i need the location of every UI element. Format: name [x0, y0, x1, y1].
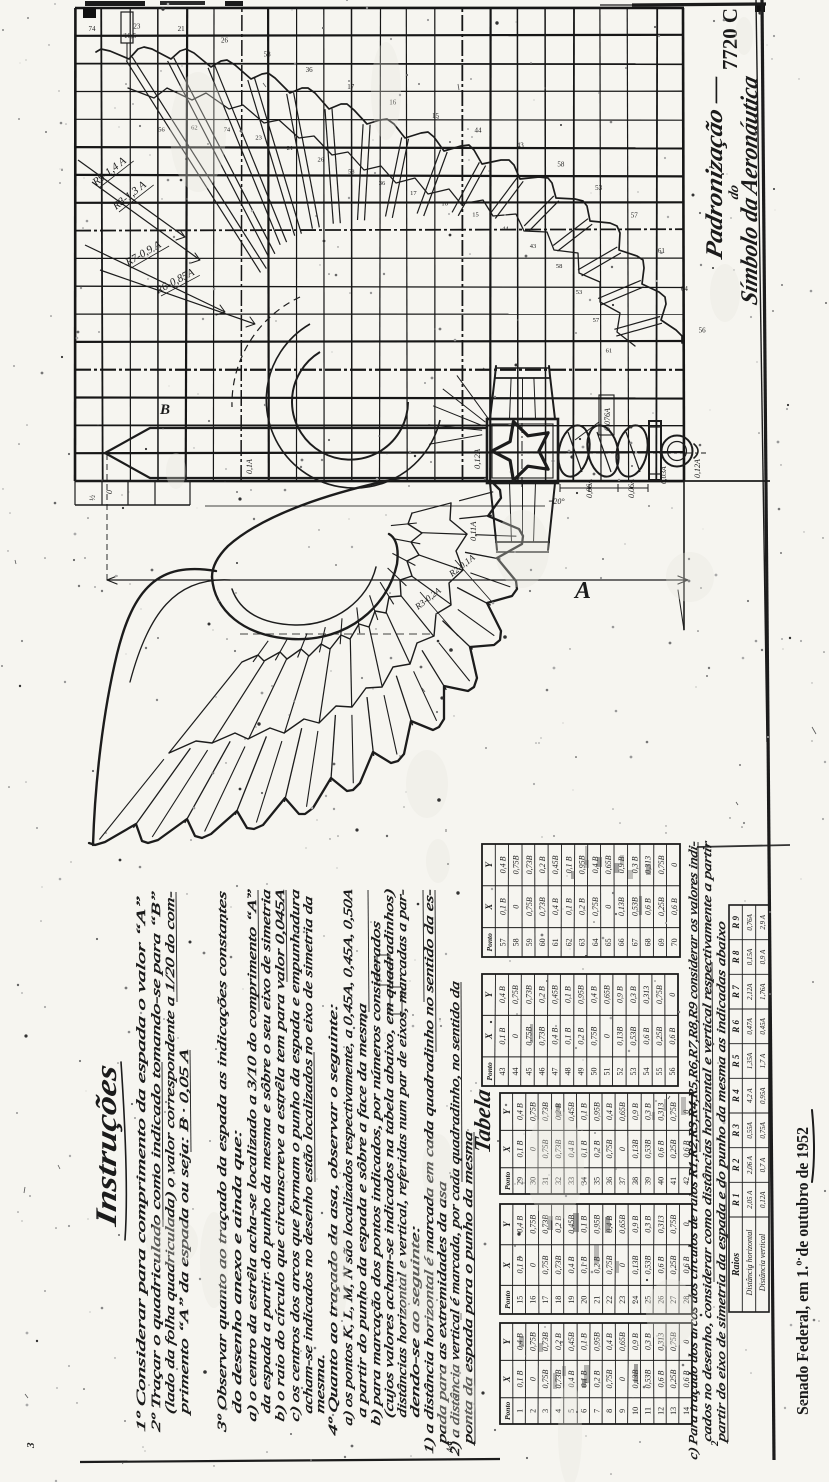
svg-text:X: X	[484, 1032, 494, 1040]
svg-text:56: 56	[158, 126, 165, 133]
svg-text:0,1 B: 0,1 B	[498, 1028, 507, 1045]
svg-text:2,9 A: 2,9 A	[759, 914, 767, 929]
svg-text:8: 8	[605, 1409, 614, 1413]
svg-text:9: 9	[618, 1409, 627, 1413]
svg-text:16: 16	[441, 201, 448, 208]
svg-text:acham-se indicados no desenho: acham-se indicados no desenho estão loca…	[301, 895, 315, 1415]
svg-text:0,47A: 0,47A	[746, 1017, 754, 1034]
svg-text:0,13B: 0,13B	[631, 1255, 640, 1274]
svg-text:mesma.: mesma.	[313, 1352, 327, 1415]
svg-text:3º Observar quanto ao traçado: 3º Observar quanto ao traçado da espada …	[215, 890, 229, 1435]
svg-text:43: 43	[517, 141, 525, 149]
svg-text:0,6 B: 0,6 B	[656, 1256, 665, 1273]
svg-text:4-8: 4-8	[445, 1441, 454, 1453]
svg-text:0,2 B: 0,2 B	[592, 1371, 601, 1388]
svg-text:0: 0	[670, 863, 679, 867]
svg-text:62: 62	[564, 938, 573, 946]
svg-text:0: 0	[528, 1377, 537, 1381]
svg-text:Ponto: Ponto	[503, 1290, 512, 1309]
svg-text:0,1 B: 0,1 B	[580, 1333, 589, 1350]
svg-text:47: 47	[550, 1067, 559, 1075]
svg-text:36: 36	[379, 180, 386, 187]
svg-text:Instruções: Instruções	[89, 1061, 123, 1229]
svg-text:R3-0,2A: R3-0,2A	[412, 585, 443, 612]
svg-text:0,9 B: 0,9 B	[631, 1333, 640, 1350]
svg-text:54: 54	[642, 1067, 651, 1075]
svg-text:Y: Y	[502, 1107, 512, 1114]
svg-text:0,076A: 0,076A	[603, 408, 612, 431]
svg-text:a partir do punho da espada e: a partir do punho da espada e sôbre a fa…	[355, 1002, 369, 1419]
svg-text:0,6 B: 0,6 B	[656, 1141, 665, 1158]
svg-text:29: 29	[516, 1177, 525, 1185]
svg-text:B: B	[159, 402, 170, 418]
svg-text:0,06A: 0,06A	[585, 479, 594, 498]
svg-text:0,65B: 0,65B	[604, 855, 613, 874]
svg-text:c) os centros dos arcos que fo: c) os centros dos arcos que formam o pun…	[288, 888, 302, 1423]
svg-text:R 3: R 3	[731, 1123, 741, 1137]
svg-text:Y: Y	[502, 1337, 512, 1344]
svg-text:0,4 B: 0,4 B	[516, 1216, 525, 1233]
svg-text:21: 21	[592, 1296, 601, 1304]
svg-text:0,1 B: 0,1 B	[564, 898, 573, 915]
svg-text:Símbolo da Aeronáutica: Símbolo da Aeronáutica	[736, 73, 763, 308]
svg-text:0,1 B: 0,1 B	[564, 856, 573, 873]
svg-text:0,3 B: 0,3 B	[644, 1216, 653, 1233]
svg-text:51: 51	[603, 1067, 612, 1075]
svg-text:0,75B: 0,75B	[512, 855, 521, 874]
svg-text:2: 2	[709, 1440, 721, 1447]
svg-text:58: 58	[557, 160, 565, 168]
svg-text:0,6 B: 0,6 B	[644, 898, 653, 915]
svg-text:b) o raio do círculo que circu: b) o raio do círculo que circunscreve a …	[273, 887, 287, 1422]
svg-text:0,75B: 0,75B	[528, 1215, 537, 1234]
svg-text:65: 65	[604, 938, 613, 946]
svg-text:0,4 B: 0,4 B	[498, 986, 507, 1003]
svg-text:R 6: R 6	[731, 1019, 741, 1033]
svg-text:0,6 B: 0,6 B	[668, 1028, 677, 1045]
svg-text:0,75B: 0,75B	[525, 897, 534, 916]
svg-text:0,75B: 0,75B	[541, 1370, 550, 1389]
svg-text:61: 61	[551, 938, 560, 946]
svg-text:70: 70	[670, 938, 679, 946]
svg-text:66: 66	[617, 938, 626, 946]
svg-text:0,53B: 0,53B	[644, 1370, 653, 1389]
svg-text:0,1 B: 0,1 B	[580, 1256, 589, 1273]
svg-text:56: 56	[668, 1067, 677, 1075]
svg-text:0: 0	[512, 905, 521, 909]
svg-text:0,45B: 0,45B	[567, 1332, 576, 1351]
svg-text:68: 68	[644, 938, 653, 946]
svg-text:Distância horizontal: Distância horizontal	[745, 1229, 754, 1297]
svg-text:0,2 B: 0,2 B	[592, 1141, 601, 1158]
svg-text:53: 53	[629, 1067, 638, 1075]
svg-text:69: 69	[657, 938, 666, 946]
svg-text:0,73B: 0,73B	[538, 897, 547, 916]
svg-text:0,95B: 0,95B	[577, 985, 586, 1004]
svg-text:2,12A: 2,12A	[746, 983, 754, 1000]
svg-text:X: X	[502, 1261, 512, 1269]
svg-text:0,4 B: 0,4 B	[605, 1103, 614, 1120]
svg-text:21: 21	[178, 25, 186, 33]
svg-text:0,2 B: 0,2 B	[577, 1028, 586, 1045]
svg-text:0: 0	[618, 1263, 627, 1267]
svg-text:4º Quanto ao traçado da asa, o: 4º Quanto ao traçado da asa, observar o …	[326, 1002, 340, 1437]
svg-text:Y: Y	[502, 1220, 512, 1227]
svg-text:0,73B: 0,73B	[554, 1255, 563, 1274]
svg-text:0: 0	[618, 1377, 627, 1381]
svg-text:18: 18	[554, 1296, 563, 1304]
svg-text:50: 50	[590, 1067, 599, 1075]
svg-text:60: 60	[538, 938, 547, 946]
svg-text:23: 23	[133, 23, 141, 31]
svg-text:0,55A: 0,55A	[746, 1121, 754, 1138]
svg-text:0,1 B: 0,1 B	[498, 898, 507, 915]
svg-text:Raios: Raios	[731, 1253, 742, 1277]
svg-text:67: 67	[630, 938, 639, 946]
svg-text:0,9 B: 0,9 B	[616, 986, 625, 1003]
svg-text:44: 44	[511, 1067, 520, 1075]
svg-text:0,1 B: 0,1 B	[580, 1216, 589, 1233]
svg-text:3: 3	[25, 1442, 37, 1449]
svg-text:0,73B: 0,73B	[524, 985, 533, 1004]
svg-text:(lado da folha quadriculada) o: (lado da folha quadriculada) o valor cor…	[163, 890, 177, 1415]
svg-text:58: 58	[512, 938, 521, 946]
svg-text:17: 17	[410, 190, 417, 197]
svg-text:15: 15	[516, 1296, 525, 1304]
svg-text:53: 53	[576, 289, 583, 296]
svg-text:0,75B: 0,75B	[605, 1255, 614, 1274]
svg-text:0,12A: 0,12A	[472, 448, 482, 469]
svg-text:45: 45	[524, 1067, 533, 1075]
svg-text:53: 53	[595, 184, 603, 192]
svg-text:0,1 B: 0,1 B	[516, 1256, 525, 1273]
svg-text:0,25B: 0,25B	[669, 1370, 678, 1389]
svg-text:1,7 A: 1,7 A	[759, 1053, 767, 1068]
svg-text:0,313: 0,313	[642, 986, 651, 1004]
svg-text:20: 20	[580, 1296, 589, 1304]
svg-text:55: 55	[655, 1067, 664, 1075]
svg-text:2,05 A: 2,05 A	[746, 1190, 754, 1209]
svg-text:0,73B: 0,73B	[525, 855, 534, 874]
svg-text:0,4 B: 0,4 B	[516, 1103, 525, 1120]
svg-text:R 5: R 5	[731, 1054, 741, 1068]
svg-text:R8-1,3 A: R8-1,3 A	[110, 179, 149, 213]
svg-text:56: 56	[699, 326, 707, 334]
svg-text:13: 13	[669, 1407, 678, 1415]
svg-text:24: 24	[631, 1296, 640, 1304]
svg-text:a) os pontos K, L, M, N são lo: a) os pontos K, L, M, N são localizados …	[341, 887, 355, 1426]
svg-text:0,9 B: 0,9 B	[631, 1216, 640, 1233]
svg-text:17: 17	[347, 83, 355, 91]
svg-text:21: 21	[287, 145, 294, 152]
svg-text:cados no desenho, considerar c: cados no desenho, considerar como distân…	[700, 839, 714, 1442]
svg-text:4,2 A: 4,2 A	[746, 1088, 754, 1103]
svg-text:0,3 B: 0,3 B	[644, 1333, 653, 1350]
svg-text:64: 64	[681, 285, 689, 293]
svg-text:R 2: R 2	[731, 1158, 741, 1172]
svg-text:2: 2	[528, 1409, 537, 1413]
svg-text:b) para marcação dos pontos in: b) para marcação dos pontos indicados, p…	[369, 920, 383, 1427]
svg-text:0,03A: 0,03A	[659, 466, 668, 484]
svg-text:0,4 B: 0,4 B	[550, 1028, 559, 1045]
svg-text:22: 22	[605, 1296, 614, 1304]
svg-text:0,76A: 0,76A	[746, 913, 754, 930]
svg-text:0,6 B: 0,6 B	[670, 898, 679, 915]
svg-text:40: 40	[656, 1177, 665, 1185]
svg-text:0: 0	[618, 1147, 627, 1151]
svg-text:0,313: 0,313	[656, 1215, 665, 1233]
svg-text:48: 48	[563, 1067, 572, 1075]
svg-text:12: 12	[656, 1407, 665, 1415]
svg-text:0,25B: 0,25B	[655, 1027, 664, 1046]
svg-text:X: X	[502, 1145, 512, 1153]
svg-text:partir do eixo de simetria da: partir do eixo de simetria da espada e d…	[714, 920, 728, 1444]
svg-text:0,65B: 0,65B	[603, 985, 612, 1004]
svg-text:0,75B: 0,75B	[669, 1102, 678, 1121]
svg-text:10,5: 10,5	[124, 32, 137, 40]
svg-text:R 8: R 8	[731, 950, 741, 964]
svg-text:0,4 B: 0,4 B	[567, 1256, 576, 1273]
svg-text:0,75B: 0,75B	[511, 985, 520, 1004]
svg-text:c) Para traçado dos arcos dos: c) Para traçado dos arcos dos círculos d…	[686, 840, 700, 1461]
svg-text:0,1A: 0,1A	[245, 459, 254, 474]
svg-text:1º Considerar para comprimento: 1º Considerar para comprimento da espada…	[134, 895, 148, 1433]
svg-text:0: 0	[604, 905, 613, 909]
svg-text:1: 1	[516, 1409, 525, 1413]
svg-text:0,3 B: 0,3 B	[644, 1103, 653, 1120]
svg-text:17: 17	[541, 1296, 550, 1304]
svg-text:0,25B: 0,25B	[669, 1140, 678, 1159]
svg-text:0,73B: 0,73B	[537, 1027, 546, 1046]
svg-text:0,95B: 0,95B	[592, 1215, 601, 1234]
svg-text:0,25B: 0,25B	[669, 1255, 678, 1274]
svg-text:Tabela: Tabela	[470, 1086, 496, 1155]
svg-text:52: 52	[616, 1067, 625, 1075]
svg-text:44: 44	[502, 225, 509, 232]
svg-text:R 7: R 7	[731, 985, 741, 999]
svg-text:0,2 B: 0,2 B	[538, 856, 547, 873]
svg-text:½: ½	[88, 495, 97, 501]
svg-text:43: 43	[530, 243, 537, 250]
svg-text:0,65B: 0,65B	[618, 1215, 627, 1234]
svg-text:61: 61	[606, 347, 613, 354]
svg-text:0,1 B: 0,1 B	[563, 986, 572, 1003]
svg-text:26: 26	[317, 156, 324, 163]
svg-text:10: 10	[631, 1407, 640, 1415]
svg-text:Padronização —: Padronização —	[701, 72, 728, 262]
svg-text:Ponto: Ponto	[485, 933, 494, 952]
svg-text:(cujos valores acham-se indica: (cujos valores acham-se indicados na tab…	[382, 888, 396, 1419]
svg-text:0,7 A: 0,7 A	[759, 1157, 767, 1172]
svg-text:11: 11	[644, 1407, 653, 1415]
svg-text:0,65B: 0,65B	[618, 1332, 627, 1351]
svg-text:57: 57	[593, 317, 600, 324]
svg-text:Distância vertical: Distância vertical	[758, 1233, 767, 1292]
svg-text:0,12A: 0,12A	[759, 1191, 767, 1208]
svg-text:57: 57	[498, 938, 507, 946]
svg-text:36: 36	[605, 1177, 614, 1185]
svg-text:0,75B: 0,75B	[657, 855, 666, 874]
svg-text:0,13B: 0,13B	[616, 1027, 625, 1046]
svg-text:0,75B: 0,75B	[590, 1027, 599, 1046]
svg-text:0,11A: 0,11A	[468, 521, 478, 541]
svg-text:0,4 B: 0,4 B	[590, 986, 599, 1003]
svg-text:0,13B: 0,13B	[617, 897, 626, 916]
svg-text:58: 58	[264, 50, 272, 58]
svg-text:distâncias horizontal e vertic: distâncias horizontal e vertical, referi…	[395, 888, 409, 1419]
svg-text:46: 46	[537, 1067, 546, 1075]
svg-text:0,4 B: 0,4 B	[605, 1333, 614, 1350]
svg-text:16: 16	[528, 1296, 537, 1304]
svg-text:2º Traçar o quadriculado como: 2º Traçar o quadriculado como indicado t…	[149, 890, 163, 1433]
svg-text:0,65B: 0,65B	[618, 1102, 627, 1121]
svg-text:61: 61	[658, 247, 666, 255]
svg-text:44: 44	[475, 126, 483, 134]
svg-text:63: 63	[578, 938, 587, 946]
svg-text:do desenho anexo e ainda que:: do desenho anexo e ainda que:	[230, 1128, 244, 1415]
svg-text:3: 3	[541, 1409, 550, 1413]
svg-text:0,53B: 0,53B	[629, 1027, 638, 1046]
svg-text:1,35A: 1,35A	[746, 1052, 754, 1069]
svg-text:0,53B: 0,53B	[644, 1255, 653, 1274]
svg-text:49: 49	[577, 1067, 586, 1075]
svg-text:0,4 B: 0,4 B	[498, 856, 507, 873]
svg-text:0: 0	[511, 1034, 520, 1038]
svg-text:0,6 B: 0,6 B	[642, 1028, 651, 1045]
svg-text:1,76A: 1,76A	[759, 983, 767, 1000]
svg-text:0,1 B: 0,1 B	[580, 1103, 589, 1120]
svg-text:39: 39	[644, 1177, 653, 1185]
svg-text:74: 74	[89, 25, 97, 33]
svg-text:Ponto: Ponto	[503, 1401, 512, 1420]
svg-text:0,4 B: 0,4 B	[551, 898, 560, 915]
svg-text:0,06A: 0,06A	[627, 479, 636, 498]
svg-text:0,1 B: 0,1 B	[516, 1371, 525, 1388]
svg-text:0,45B: 0,45B	[551, 855, 560, 874]
svg-text:R6-0,85A: R6-0,85A	[153, 266, 197, 297]
svg-text:0,75B: 0,75B	[605, 1370, 614, 1389]
svg-text:0,25B: 0,25B	[657, 897, 666, 916]
svg-text:36: 36	[306, 66, 314, 74]
svg-text:57: 57	[631, 211, 639, 219]
svg-text:0: 0	[668, 993, 677, 997]
svg-text:0,95A: 0,95A	[759, 1087, 767, 1104]
svg-text:23: 23	[618, 1296, 627, 1304]
svg-text:0,1 B: 0,1 B	[516, 1141, 525, 1158]
svg-text:0,2 B: 0,2 B	[537, 986, 546, 1003]
svg-text:0,95B: 0,95B	[592, 1102, 601, 1121]
svg-text:0,75B: 0,75B	[528, 1102, 537, 1121]
svg-text:R 1: R 1	[731, 1193, 741, 1207]
svg-text:0,75B: 0,75B	[591, 897, 600, 916]
svg-text:26: 26	[221, 37, 229, 45]
svg-text:0,75A: 0,75A	[759, 1121, 767, 1138]
svg-text:41: 41	[669, 1177, 678, 1185]
svg-text:0,45A: 0,45A	[759, 1017, 767, 1034]
svg-text:=20°: =20°	[548, 497, 565, 506]
svg-text:15: 15	[472, 212, 479, 219]
svg-text:19: 19	[567, 1296, 576, 1304]
svg-text:0,1 B: 0,1 B	[563, 1028, 572, 1045]
svg-text:X: X	[502, 1375, 512, 1383]
svg-text:A: A	[573, 578, 591, 604]
svg-text:Ponto: Ponto	[485, 1062, 494, 1081]
svg-text:X: X	[484, 903, 494, 911]
svg-text:0,3 B: 0,3 B	[629, 986, 638, 1003]
svg-text:Y: Y	[484, 861, 494, 868]
svg-text:0: 0	[105, 490, 114, 494]
svg-text:37: 37	[618, 1177, 627, 1185]
svg-text:0,75B: 0,75B	[669, 1215, 678, 1234]
svg-text:38: 38	[631, 1177, 640, 1185]
svg-text:59: 59	[525, 938, 534, 946]
svg-text:2,06 A: 2,06 A	[746, 1155, 754, 1174]
svg-text:0: 0	[603, 1034, 612, 1038]
svg-text:0: 0	[528, 1263, 537, 1267]
svg-text:0,2 B: 0,2 B	[578, 898, 587, 915]
svg-text:Y: Y	[484, 990, 494, 997]
svg-text:23: 23	[255, 135, 261, 142]
svg-text:0,75B: 0,75B	[655, 985, 664, 1004]
svg-text:43: 43	[498, 1067, 507, 1075]
svg-text:Ponto: Ponto	[503, 1171, 512, 1190]
svg-text:0,75B: 0,75B	[528, 1332, 537, 1351]
svg-text:0,75B: 0,75B	[541, 1255, 550, 1274]
svg-text:0,13B: 0,13B	[631, 1140, 640, 1159]
svg-text:a) o centro da estrêla acha-se: a) o centro da estrêla acha-se localizad…	[245, 888, 259, 1423]
svg-text:7: 7	[592, 1409, 601, 1413]
svg-text:0,53B: 0,53B	[630, 897, 639, 916]
svg-text:da espada a partir do punho da: da espada a partir do punho da mesma e s…	[259, 888, 273, 1415]
svg-text:58: 58	[556, 263, 563, 270]
svg-text:64: 64	[591, 938, 600, 946]
svg-text:0,9 A: 0,9 A	[759, 949, 767, 964]
svg-text:0,15A: 0,15A	[746, 948, 754, 965]
svg-text:58: 58	[348, 169, 355, 176]
svg-text:0,6 B: 0,6 B	[656, 1371, 665, 1388]
svg-text:0,53B: 0,53B	[644, 1140, 653, 1159]
svg-text:R 4: R 4	[731, 1089, 741, 1103]
svg-text:35: 35	[592, 1177, 601, 1185]
svg-text:0,45B: 0,45B	[550, 985, 559, 1004]
svg-text:0,95B: 0,95B	[592, 1332, 601, 1351]
svg-text:R 9: R 9	[731, 915, 741, 929]
svg-text:0,75B: 0,75B	[605, 1140, 614, 1159]
svg-text:0,12A: 0,12A	[693, 459, 702, 478]
svg-text:0,9 B: 0,9 B	[631, 1103, 640, 1120]
svg-text:Senado Federal, em 1.º de outu: Senado Federal, em 1.º de outubro de 195…	[793, 1127, 812, 1415]
